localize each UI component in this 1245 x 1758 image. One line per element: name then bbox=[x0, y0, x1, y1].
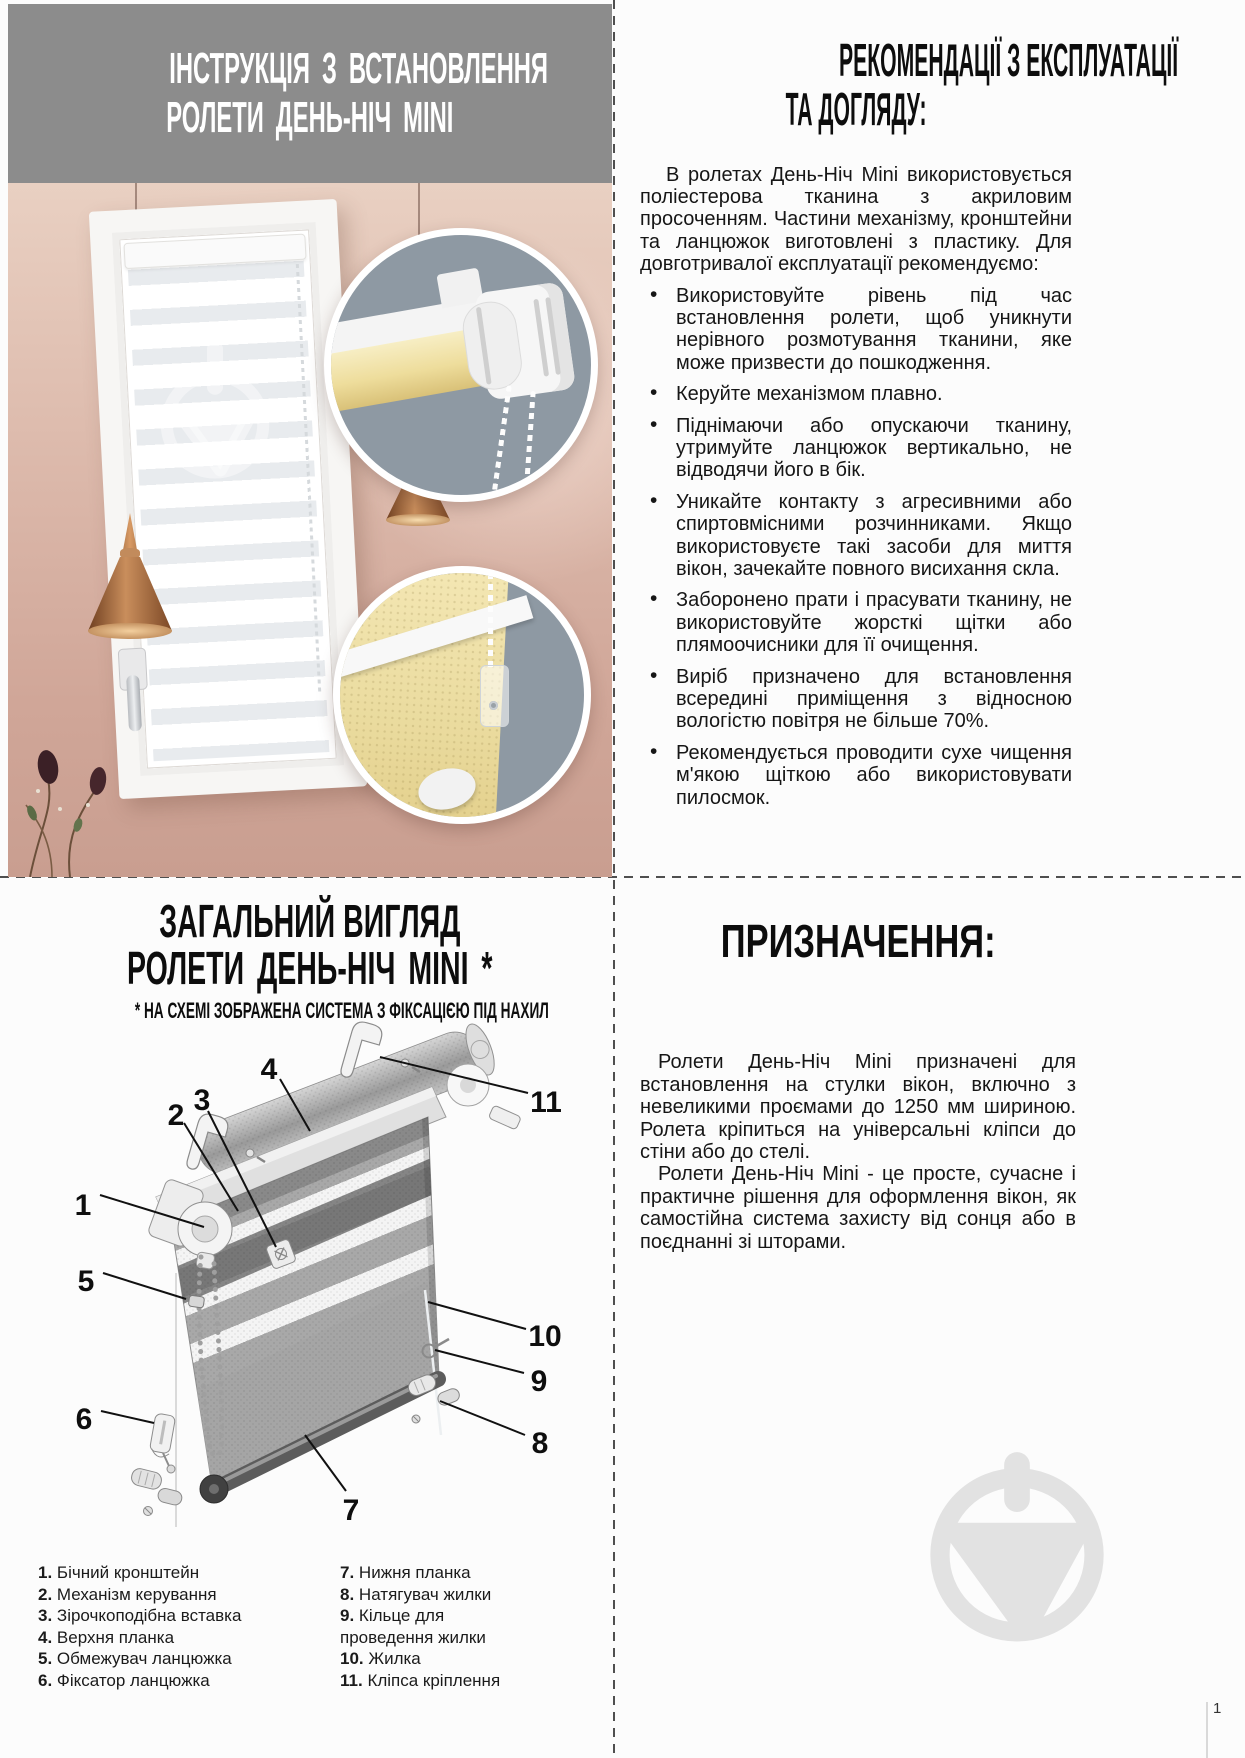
legend-item: 10. Жилка bbox=[340, 1648, 580, 1670]
care-bullet-item: Використовуйте рівень під час встановлен… bbox=[640, 285, 1072, 375]
install-title-line1: ІНСТРУКЦІЯ З ВСТАНОВЛЕННЯ bbox=[8, 4, 612, 93]
care-heading: РЕКОМЕНДАЦІЇ З ЕКСПЛУАТАЦІЇ ТА ДОГЛЯДУ: bbox=[640, 36, 1072, 134]
footer-rule bbox=[1206, 1702, 1208, 1758]
overview-title-line2: РОЛЕТИ ДЕНЬ-НІЧ MINI * bbox=[8, 945, 612, 992]
plant-decor bbox=[8, 721, 158, 877]
inset-chain bbox=[491, 385, 512, 497]
chain-limiter bbox=[188, 1295, 204, 1308]
legend-item: 11. Кліпса кріплення bbox=[340, 1670, 580, 1692]
legend-item: 4. Верхня планка bbox=[38, 1627, 333, 1649]
purpose-paragraph-2: Ролети День-Ніч Mini - це просте, сучасн… bbox=[640, 1163, 1076, 1253]
purpose-heading: ПРИЗНАЧЕННЯ: bbox=[640, 917, 1076, 965]
chain-fixator bbox=[149, 1413, 176, 1458]
legend-item: 3. Зірочкоподібна вставка bbox=[38, 1605, 333, 1627]
inset-mechanism-photo bbox=[324, 228, 598, 502]
legend-item: 6. Фіксатор ланцюжка bbox=[38, 1670, 333, 1692]
care-bullet-item: Уникайте контакту з агресивними або спир… bbox=[640, 491, 1072, 581]
window-glass bbox=[112, 222, 344, 776]
diagram-callout-7: 7 bbox=[343, 1494, 360, 1527]
diagram-callout-6: 6 bbox=[76, 1403, 93, 1436]
care-bullet-item: Керуйте механізмом плавно. bbox=[640, 383, 1072, 405]
diagram-callout-1: 1 bbox=[75, 1189, 92, 1222]
legend-item: 5. Обмежувач ланцюжка bbox=[38, 1648, 333, 1670]
diagram-callout-9: 9 bbox=[531, 1365, 548, 1398]
legend-item: 9. Кільце для проведення жилки bbox=[340, 1605, 580, 1648]
legend-column-left: 1. Бічний кронштейн 2. Механізм керуванн… bbox=[38, 1562, 333, 1691]
fixator-screw bbox=[163, 1453, 175, 1473]
window bbox=[89, 199, 367, 799]
vertical-dashed-divider bbox=[613, 0, 615, 1758]
care-bullet-item: Заборонено прати і прасувати тканину, не… bbox=[640, 589, 1072, 656]
care-intro: В ролетах День-Ніч Mini використовується… bbox=[640, 164, 1072, 276]
care-bullet-item: Піднімаючи або опускаючи тканину, утриму… bbox=[640, 415, 1072, 482]
care-bullet-item: Рекомендується проводити сухе чищення м'… bbox=[640, 742, 1072, 809]
diagram-callout-4: 4 bbox=[261, 1053, 278, 1086]
care-bullet-item: Виріб призначено для встановлення всеред… bbox=[640, 666, 1072, 733]
legend-item: 7. Нижня планка bbox=[340, 1562, 580, 1584]
diagram-callout-11: 11 bbox=[530, 1086, 562, 1119]
purpose-section: ПРИЗНАЧЕННЯ: Ролети День-Ніч Mini призна… bbox=[640, 905, 1076, 1253]
legend-column-right: 7. Нижня планка 8. Натягувач жилки 9. Кі… bbox=[340, 1562, 580, 1691]
inset-screw bbox=[489, 701, 498, 710]
pendant-lamp-icon bbox=[80, 513, 180, 663]
diagram-callout-3: 3 bbox=[194, 1084, 211, 1117]
inset-control-mechanism bbox=[474, 281, 576, 400]
purpose-paragraph-1: Ролети День-Ніч Mini призначені для вста… bbox=[640, 1051, 1076, 1163]
care-section: РЕКОМЕНДАЦІЇ З ЕКСПЛУАТАЦІЇ ТА ДОГЛЯДУ: … bbox=[640, 36, 1072, 818]
diagram-callout-2: 2 bbox=[168, 1099, 185, 1132]
inset-bottom-bar-photo bbox=[333, 566, 591, 824]
room-photo bbox=[8, 183, 612, 877]
watermark-icon bbox=[910, 1422, 1124, 1647]
care-bullet-list: Використовуйте рівень під час встановлен… bbox=[640, 285, 1072, 810]
diagram-callout-8: 8 bbox=[532, 1427, 549, 1460]
diagram-callout-5: 5 bbox=[78, 1265, 95, 1298]
legend-item: 8. Натягувач жилки bbox=[340, 1584, 580, 1606]
instruction-page: ІНСТРУКЦІЯ З ВСТАНОВЛЕННЯ РОЛЕТИ ДЕНЬ-НІ… bbox=[0, 0, 1245, 1758]
inset-chain-fixator bbox=[480, 665, 509, 727]
legend-item: 2. Механізм керування bbox=[38, 1584, 333, 1606]
side-clip bbox=[488, 1105, 521, 1130]
header-banner: ІНСТРУКЦІЯ З ВСТАНОВЛЕННЯ РОЛЕТИ ДЕНЬ-НІ… bbox=[8, 4, 612, 183]
legend-item: 1. Бічний кронштейн bbox=[38, 1562, 333, 1584]
watermark-icon bbox=[148, 341, 282, 482]
install-title-line2: РОЛЕТИ ДЕНЬ-НІЧ MINI bbox=[8, 93, 612, 142]
inset-chain bbox=[488, 573, 493, 669]
assembly-diagram: 1 2 3 4 5 6 7 8 9 10 11 bbox=[8, 1005, 612, 1565]
overview-title-line1: ЗАГАЛЬНИЙ ВИГЛЯД bbox=[8, 898, 612, 945]
page-number: 1 bbox=[1213, 1700, 1221, 1717]
diagram-callout-10: 10 bbox=[528, 1320, 561, 1353]
